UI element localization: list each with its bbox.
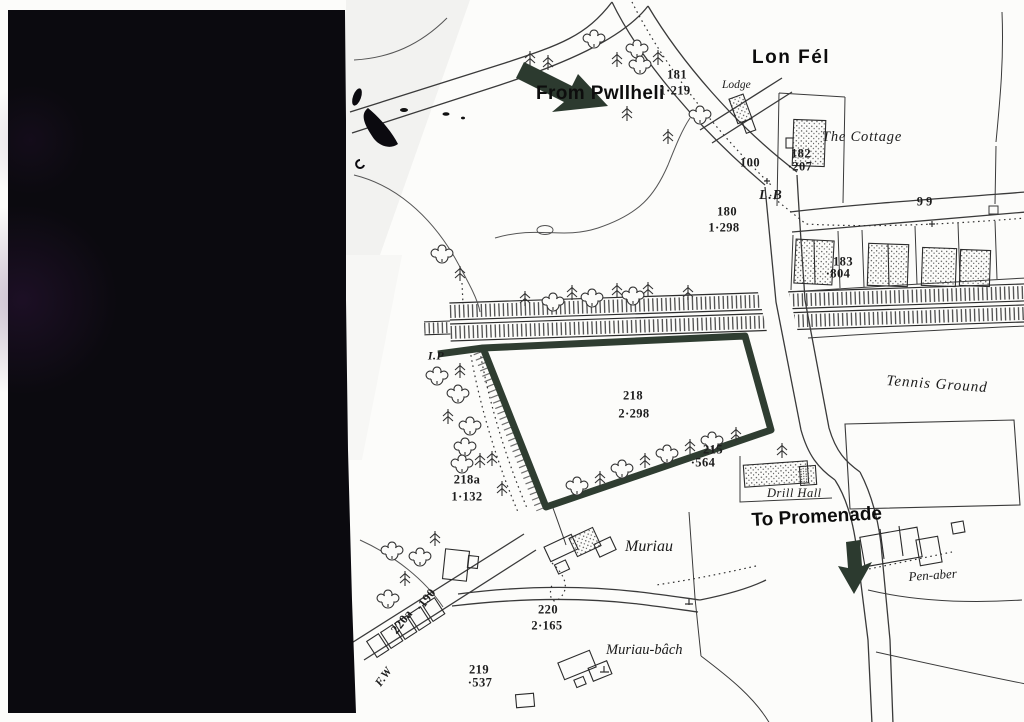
parcel-218-area: 2·298 xyxy=(618,407,649,422)
parcel-219-area: ·537 xyxy=(468,676,493,691)
label-lodge: Lodge xyxy=(722,79,751,91)
roads xyxy=(350,2,1024,722)
parcel-181-area: 1·219 xyxy=(659,84,690,99)
label-pen-aber: Pen-aber xyxy=(908,566,957,585)
parcel-220-number: 220 xyxy=(538,603,558,618)
parcel-218a-area: 1·132 xyxy=(451,490,482,505)
label-lb: L.B xyxy=(759,187,783,203)
scanned-map-page: From Pwllheli Lon Fél To Promenade Lodge… xyxy=(0,0,1024,722)
parcel-220-area: 2·165 xyxy=(531,619,562,634)
label-ip: I.P xyxy=(428,349,444,364)
parcel-180-area: 1·298 xyxy=(708,221,739,236)
parcel-218a-number: 218a xyxy=(454,473,481,488)
label-the-cottage: The Cottage xyxy=(822,129,902,146)
parcel-183-area: ·804 xyxy=(826,267,851,282)
label-muriau-bach: Muriau-bâch xyxy=(606,642,683,659)
parcel-218-number: 218 xyxy=(623,389,643,404)
map-linework xyxy=(0,0,1024,722)
to-promenade-arrow xyxy=(838,540,872,594)
spot-100: 100 xyxy=(740,156,760,171)
label-muriau: Muriau xyxy=(625,538,673,556)
label-lon-fel: Lon Fél xyxy=(752,47,830,69)
railway xyxy=(423,284,1024,342)
parcel-182-area: ·207 xyxy=(788,160,813,175)
label-drill-hall: Drill Hall xyxy=(767,486,822,501)
parcel-180-number: 180 xyxy=(717,205,737,220)
spot-99: 99 xyxy=(917,195,936,210)
parcel-181-number: 181 xyxy=(667,68,687,83)
parcel-215-area: ·564 xyxy=(691,456,716,471)
label-from-pwllheli: From Pwllheli xyxy=(536,83,665,105)
